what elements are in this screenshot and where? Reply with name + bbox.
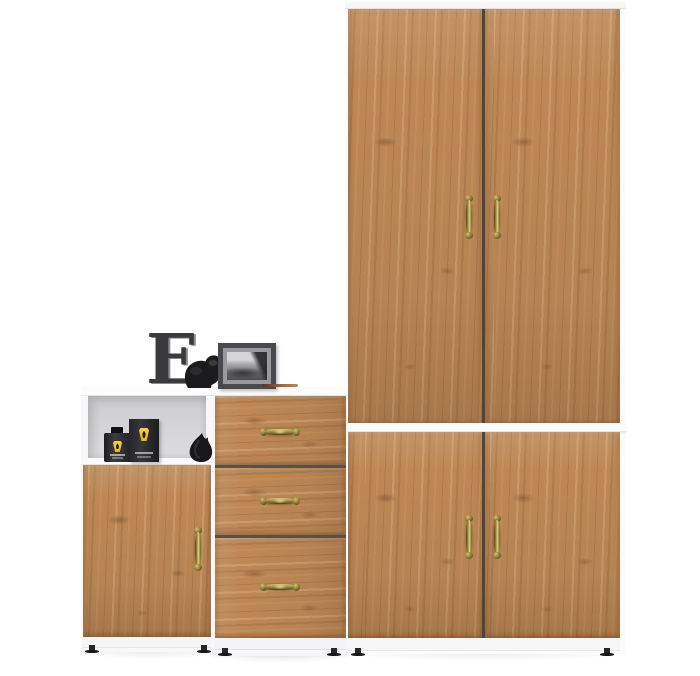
- door-handle: [464, 515, 474, 559]
- drawer-handle: [260, 427, 300, 437]
- photo-frame: [218, 343, 276, 389]
- landscape-photo: [227, 352, 267, 380]
- wardrobe-middle-shelf-panel: [345, 423, 626, 432]
- shield-badge-icon: [113, 441, 122, 452]
- cabinet-door: [83, 465, 211, 637]
- chest-drawer-3: [215, 538, 346, 638]
- bottle-label-text: [110, 454, 125, 456]
- box-label-text: [137, 456, 151, 458]
- drawer-handle: [260, 582, 300, 592]
- fragrance-bottle: [104, 427, 131, 462]
- shield-badge-icon: [139, 428, 149, 441]
- pencil: [262, 384, 298, 387]
- wardrobe-upper-left-door: [348, 9, 482, 425]
- wardrobe-upper-section: [348, 9, 620, 425]
- door-handle: [492, 515, 502, 559]
- door-handle: [492, 195, 502, 239]
- tall-wardrobe: [345, 2, 626, 654]
- wardrobe-foot: [604, 648, 610, 654]
- wardrobe-top-panel: [345, 2, 626, 9]
- leather-pouch: [187, 432, 215, 463]
- cabinet-foot: [89, 645, 95, 651]
- door-handle: [464, 195, 474, 239]
- fragrance-box: [129, 419, 159, 462]
- cabinet-base-panel: [83, 637, 211, 648]
- wardrobe-base-panel: [348, 638, 620, 651]
- wardrobe-lower-section: [348, 432, 620, 638]
- furniture-product-photo: E: [0, 0, 700, 676]
- chest-drawer-stack: [215, 396, 346, 638]
- chest-drawer-2: [215, 468, 346, 535]
- wardrobe-upper-right-door: [485, 9, 620, 425]
- chest-top-panel: [213, 388, 348, 396]
- wardrobe-lower-left-door: [348, 432, 482, 638]
- chest-foot: [331, 648, 337, 654]
- bottle-body: [104, 433, 131, 462]
- chest-base-panel: [215, 638, 346, 650]
- cabinet-foot: [201, 645, 207, 651]
- wardrobe-foot: [355, 648, 361, 654]
- drawer-chest: [213, 388, 348, 656]
- chest-foot: [222, 648, 228, 654]
- bottle-label-text: [112, 457, 123, 459]
- wardrobe-lower-right-door: [485, 432, 620, 638]
- chest-drawer-1: [215, 396, 346, 465]
- drawer-handle: [260, 496, 300, 506]
- door-handle: [193, 527, 203, 571]
- box-label-text: [135, 452, 153, 454]
